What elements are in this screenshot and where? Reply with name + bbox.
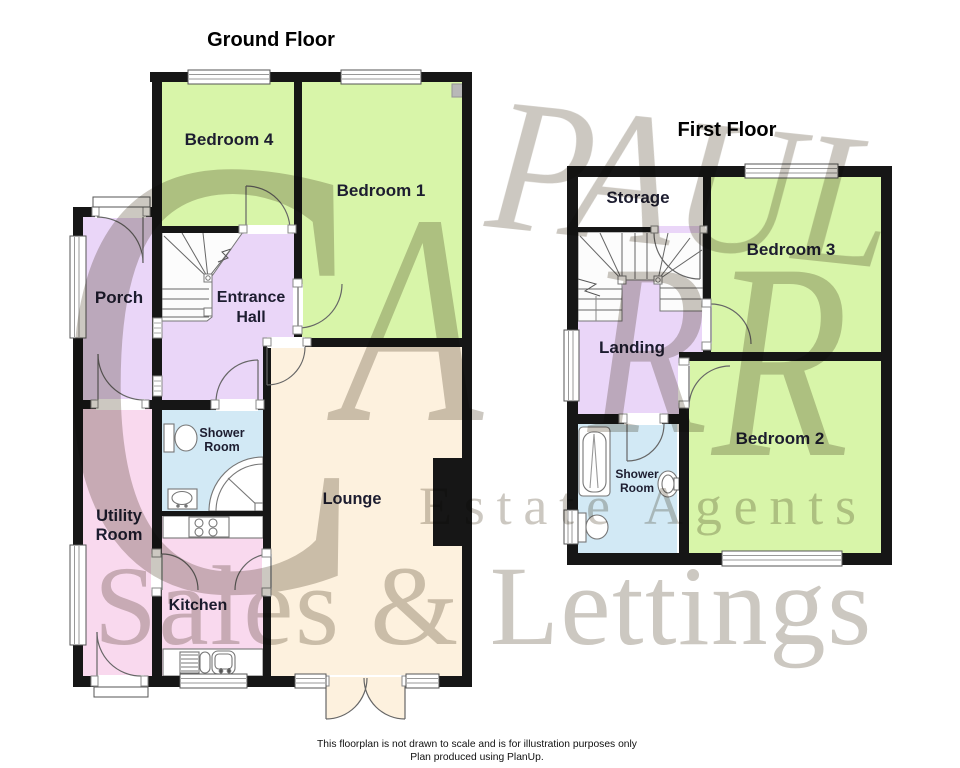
svg-text:A: A: [325, 153, 486, 485]
svg-text:This floorplan is not drawn to: This floorplan is not drawn to scale and…: [317, 739, 638, 750]
svg-text:Estate Agents: Estate Agents: [419, 476, 868, 536]
svg-text:Plan produced using PlanUp.: Plan produced using PlanUp.: [410, 752, 543, 763]
svg-text:Sales & Lettings: Sales & Lettings: [94, 544, 873, 669]
svg-text:R: R: [710, 205, 849, 515]
svg-text:R: R: [586, 213, 707, 485]
